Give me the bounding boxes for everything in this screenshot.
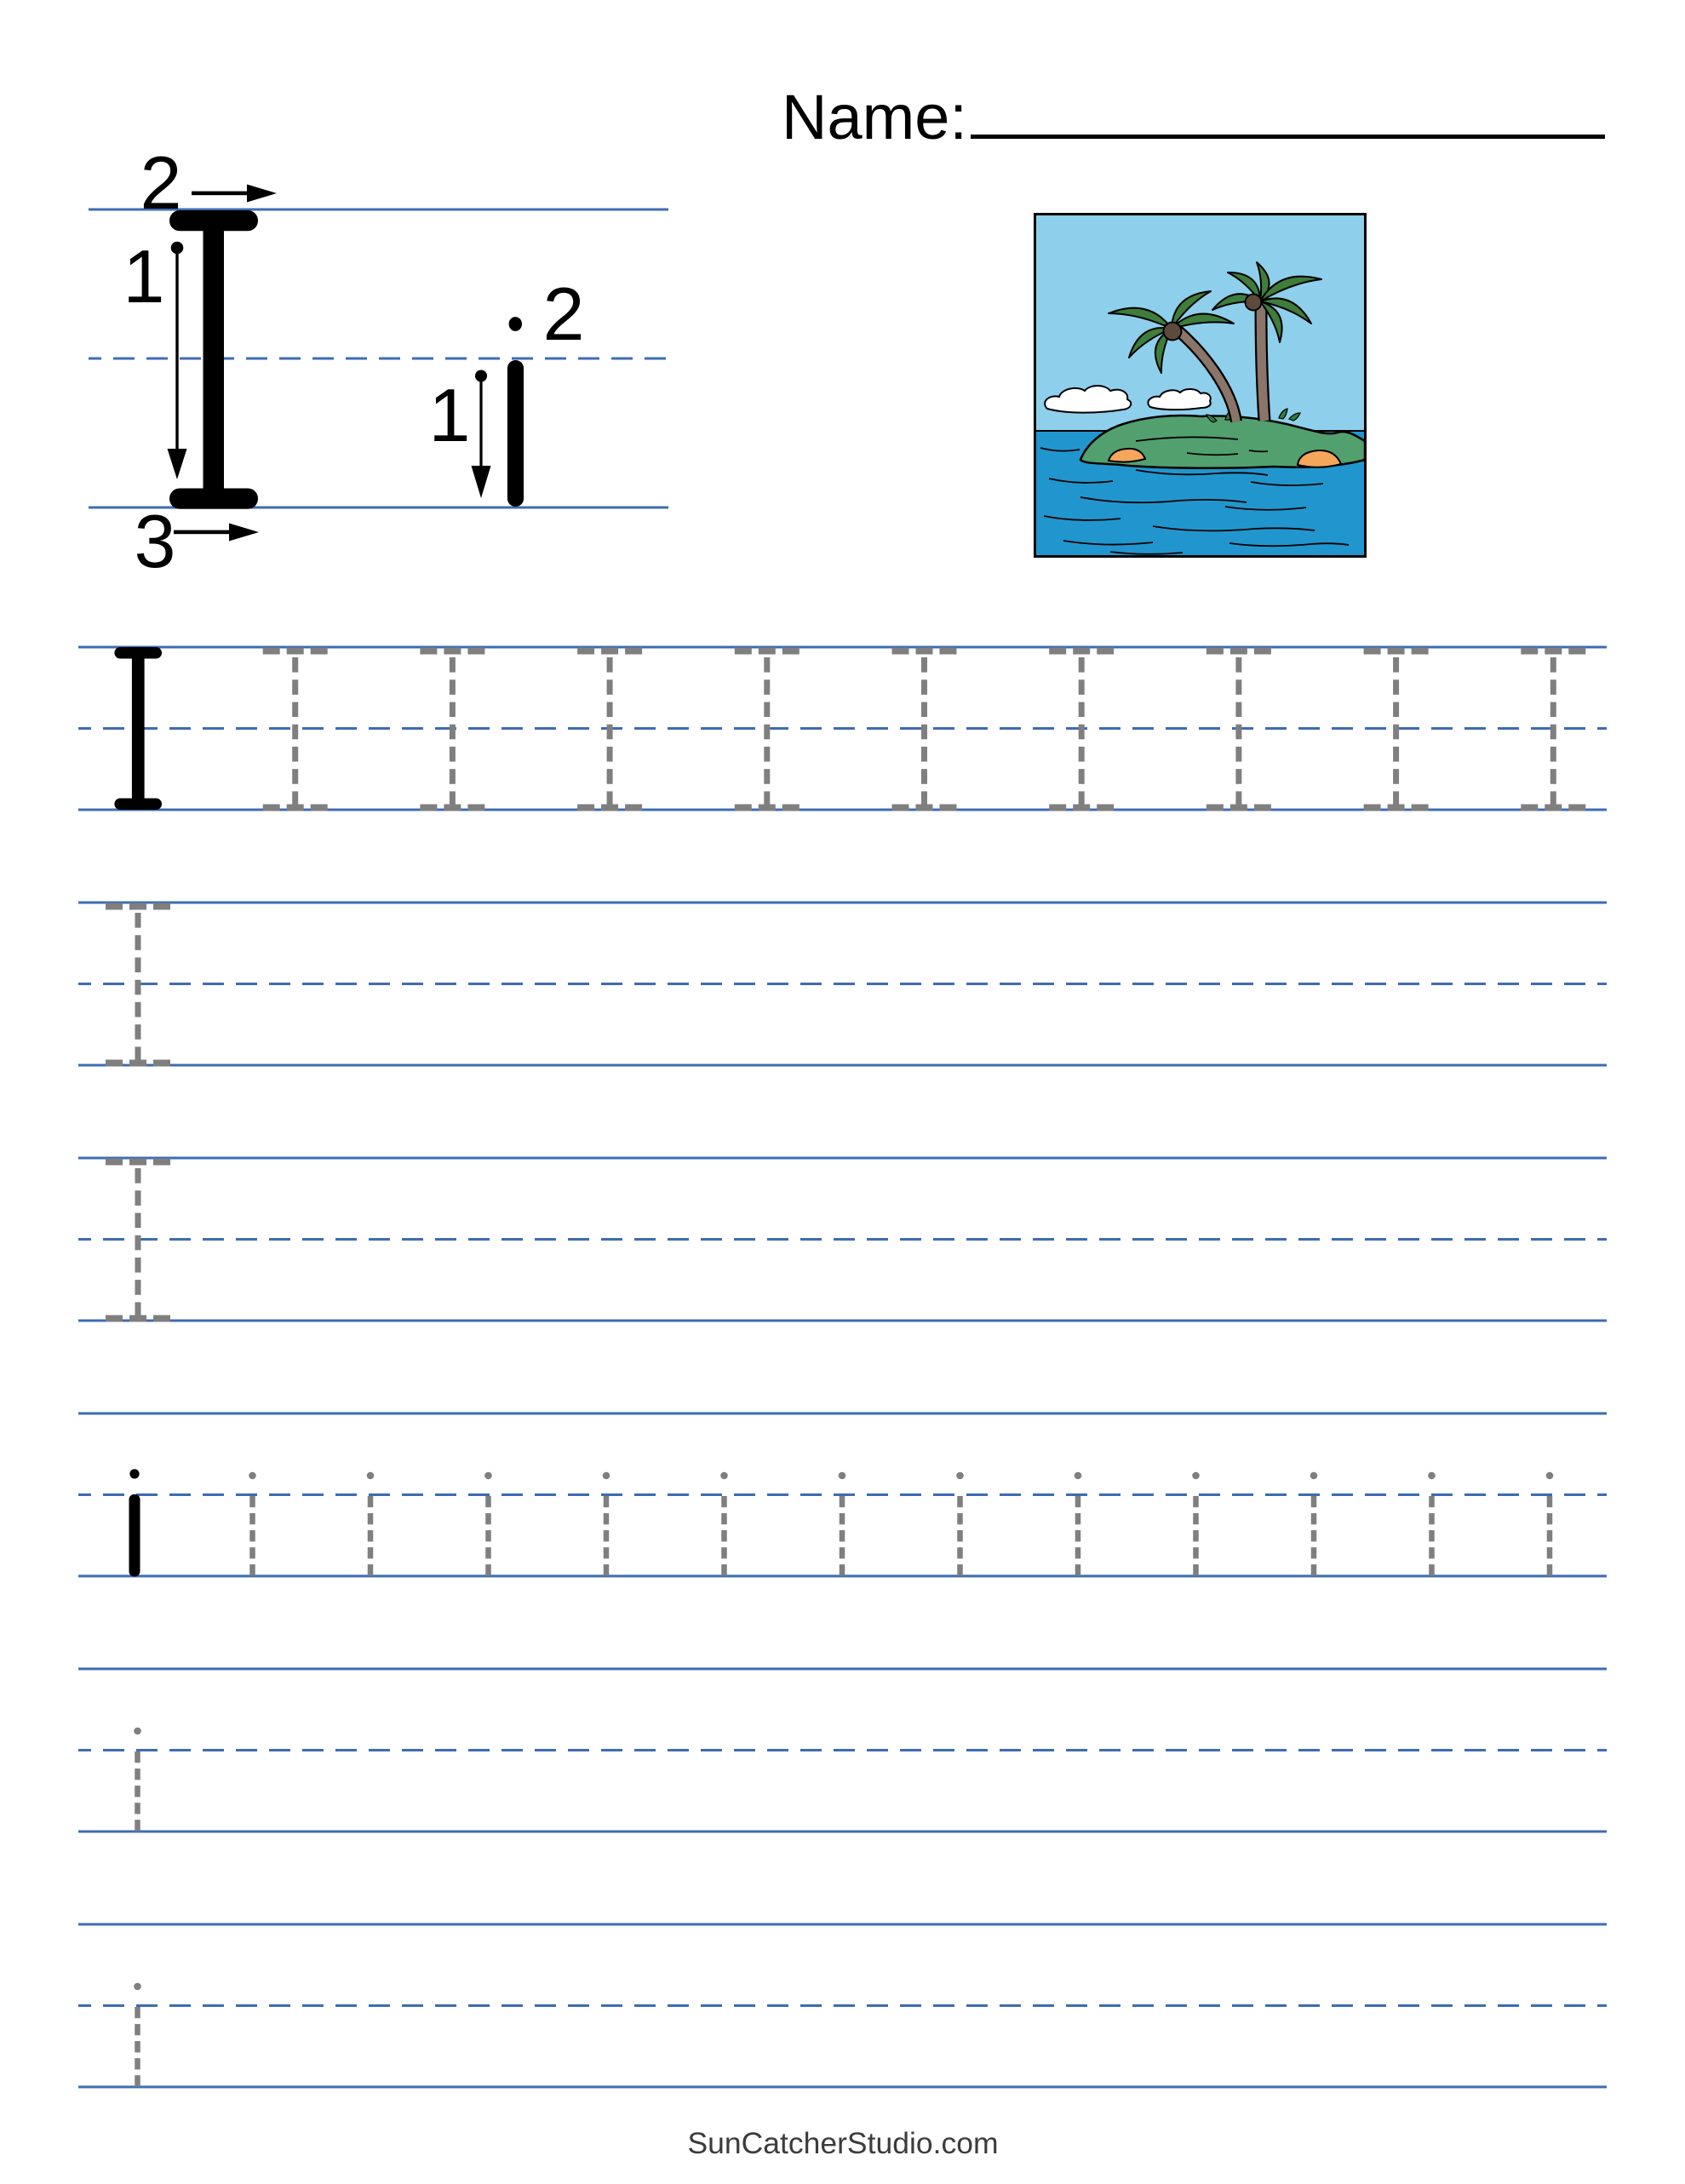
svg-text:2: 2 — [140, 140, 182, 225]
svg-text:3: 3 — [135, 499, 176, 583]
svg-text:SunCatcherStudio.com: SunCatcherStudio.com — [687, 2126, 998, 2160]
svg-text:1: 1 — [123, 234, 165, 318]
svg-text:1: 1 — [429, 373, 471, 457]
svg-text:Name:: Name: — [782, 82, 967, 152]
svg-text:2: 2 — [543, 272, 585, 356]
